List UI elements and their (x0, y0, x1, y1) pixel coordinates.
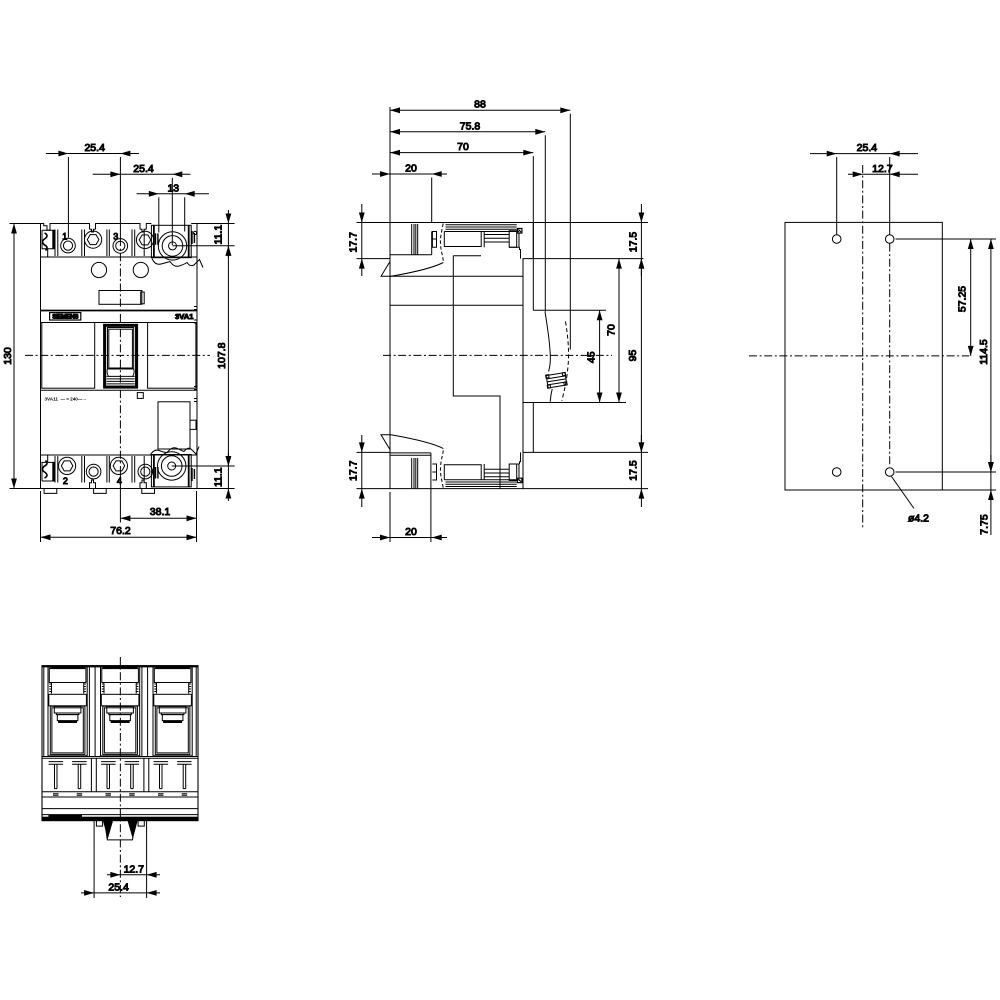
svg-text:SIEMENS: SIEMENS (52, 314, 79, 321)
svg-text:76.2: 76.2 (110, 525, 131, 537)
svg-text:20: 20 (405, 163, 417, 175)
svg-text:75.8: 75.8 (460, 120, 481, 132)
svg-text:12.7: 12.7 (872, 163, 893, 175)
svg-text:107.8: 107.8 (216, 342, 228, 368)
svg-text:13: 13 (167, 182, 179, 194)
svg-text:3VA11 — ≈ 240—→: 3VA11 — ≈ 240—→ (45, 397, 88, 402)
svg-text:2: 2 (63, 476, 68, 486)
svg-text:70: 70 (457, 141, 469, 153)
svg-text:3: 3 (113, 232, 118, 242)
svg-text:17.7: 17.7 (348, 232, 360, 253)
svg-text:25.4: 25.4 (133, 163, 154, 175)
svg-text:4: 4 (117, 476, 122, 486)
svg-text:11.1: 11.1 (213, 225, 225, 245)
svg-text:1: 1 (62, 232, 67, 242)
svg-text:95: 95 (627, 350, 639, 362)
svg-text:88: 88 (474, 99, 486, 111)
svg-text:25.4: 25.4 (108, 881, 129, 893)
svg-text:12.7: 12.7 (124, 863, 145, 875)
svg-text:17.7: 17.7 (348, 460, 360, 481)
svg-text:70: 70 (606, 324, 618, 336)
svg-text:57.25: 57.25 (957, 286, 969, 312)
svg-text:114.5: 114.5 (978, 339, 990, 365)
svg-text:7.75: 7.75 (978, 514, 990, 535)
svg-text:17.5: 17.5 (628, 460, 640, 481)
svg-text:25.4: 25.4 (857, 142, 878, 154)
svg-text:20: 20 (405, 526, 417, 538)
svg-text:38.1: 38.1 (150, 506, 171, 518)
svg-text:130: 130 (2, 347, 14, 365)
svg-text:25.4: 25.4 (84, 142, 105, 154)
svg-text:45: 45 (586, 351, 598, 363)
svg-text:17.5: 17.5 (628, 232, 640, 253)
svg-text:3VA1: 3VA1 (175, 312, 194, 321)
svg-text:11.1: 11.1 (213, 467, 225, 487)
svg-text:ø4.2: ø4.2 (908, 513, 929, 525)
